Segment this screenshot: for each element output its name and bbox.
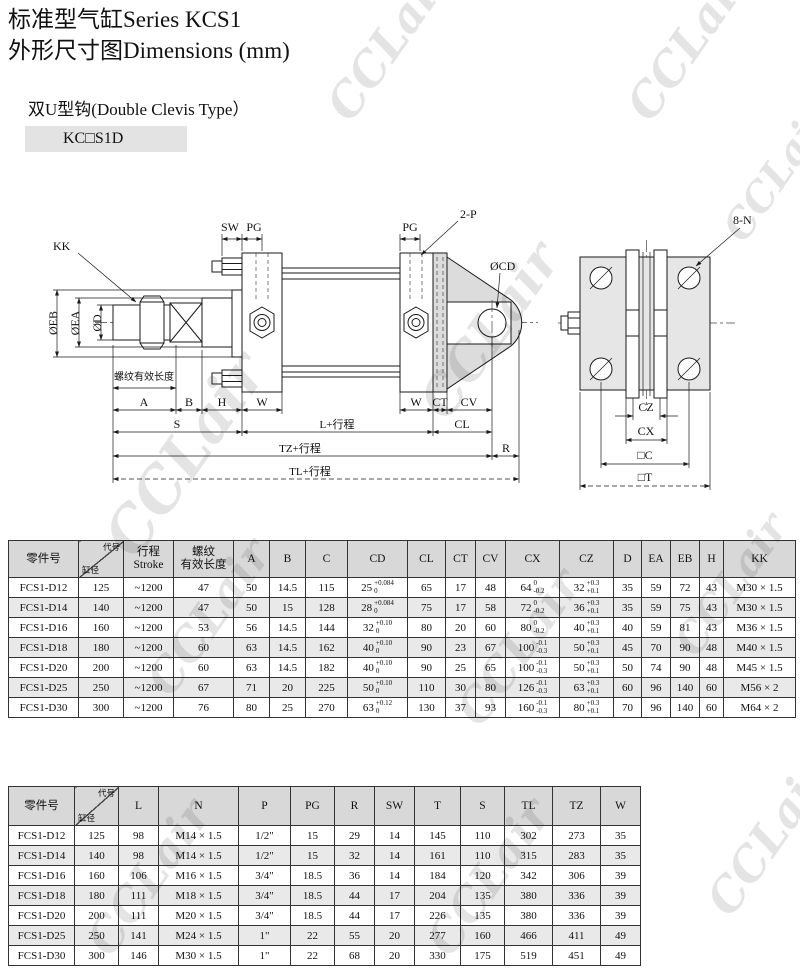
- table-cell: 60: [700, 698, 724, 718]
- table-cell: 90: [671, 658, 700, 678]
- table-cell: 45: [614, 638, 642, 658]
- table-cell: FCS1-D12: [9, 826, 75, 846]
- table-cell: FCS1-D30: [9, 946, 75, 966]
- dim-label-cz: CZ: [638, 400, 653, 414]
- table-cell: 48: [700, 638, 724, 658]
- table-cell: ~1200: [124, 658, 174, 678]
- table-cell: 140: [79, 598, 124, 618]
- table-cell: 140: [671, 698, 700, 718]
- column-header: CV: [476, 541, 506, 578]
- table-cell: M30 × 1.5: [724, 578, 796, 598]
- table-cell: 63: [234, 658, 270, 678]
- table-cell: 15: [291, 846, 335, 866]
- table-cell: 225: [306, 678, 348, 698]
- table-cell: 39: [601, 886, 641, 906]
- column-header: B: [270, 541, 306, 578]
- column-header: D: [614, 541, 642, 578]
- dim-label-kk: KK: [53, 239, 71, 253]
- table-cell: 36+0.3+0.1: [560, 598, 614, 618]
- table-cell: 60: [476, 618, 506, 638]
- table-cell: 55: [335, 926, 375, 946]
- table-cell: 161: [415, 846, 461, 866]
- table-cell: 111: [119, 906, 159, 926]
- table-cell: M18 × 1.5: [159, 886, 239, 906]
- table-cell: 120: [461, 866, 505, 886]
- table-cell: 1": [239, 946, 291, 966]
- table-cell: 60: [614, 678, 642, 698]
- table-cell: 182: [306, 658, 348, 678]
- dim-label-w-front: W: [256, 395, 268, 409]
- column-header: L: [119, 787, 159, 826]
- table-cell: 63+0.3+0.1: [560, 678, 614, 698]
- table-cell: FCS1-D30: [9, 698, 79, 718]
- dimension-drawing: KK SW PG PG 2-P ØCD ØEB ØEA ØD 螺纹有效长度: [0, 185, 800, 525]
- table-cell: 306: [553, 866, 601, 886]
- table-cell: 49: [601, 946, 641, 966]
- column-header: SW: [375, 787, 415, 826]
- table-cell: 47: [174, 578, 234, 598]
- table-cell: 640-0.2: [506, 578, 560, 598]
- table-cell: 67: [174, 678, 234, 698]
- mounting-type-subtitle: 双U型钩(Double Clevis Type）: [28, 95, 249, 120]
- table-cell: 3/4": [239, 906, 291, 926]
- table-cell: 135: [461, 906, 505, 926]
- table-cell: M36 × 1.5: [724, 618, 796, 638]
- dim-label-a: A: [140, 395, 149, 409]
- table-cell: 50: [234, 598, 270, 618]
- table-row: FCS1-D12125~1200475014.511525+0.08406517…: [9, 578, 796, 598]
- dim-label-pg-front: PG: [246, 220, 262, 234]
- table-cell: 144: [306, 618, 348, 638]
- table-cell: 40+0.100: [348, 638, 408, 658]
- table-cell: 14: [375, 826, 415, 846]
- dim-label-sw: SW: [221, 220, 240, 234]
- table-cell: 110: [408, 678, 446, 698]
- table-cell: 90: [408, 638, 446, 658]
- table-cell: 1": [239, 926, 291, 946]
- table-row: FCS1-D25250141M24 × 1.51"225520277160466…: [9, 926, 641, 946]
- column-header: TL: [505, 787, 553, 826]
- table-cell: M14 × 1.5: [159, 846, 239, 866]
- table-cell: 100-0.1-0.3: [506, 638, 560, 658]
- dim-label-oea: ØEA: [68, 310, 82, 335]
- table-cell: M20 × 1.5: [159, 906, 239, 926]
- column-header: T: [415, 787, 461, 826]
- table-cell: 141: [119, 926, 159, 946]
- table-cell: 380: [505, 886, 553, 906]
- table-cell: 40+0.100: [348, 658, 408, 678]
- table-cell: 17: [446, 578, 476, 598]
- column-header: 零件号: [9, 541, 79, 578]
- table-row: FCS1-D16160106M16 × 1.53/4"18.5361418412…: [9, 866, 641, 886]
- dim-label-r: R: [502, 441, 510, 455]
- table-cell: 273: [553, 826, 601, 846]
- table-cell: 175: [461, 946, 505, 966]
- dim-label-tl-stroke: TL+行程: [289, 465, 331, 478]
- table-cell: 47: [174, 598, 234, 618]
- table-cell: 32+0.3+0.1: [560, 578, 614, 598]
- table-cell: 63+0.120: [348, 698, 408, 718]
- table-cell: 39: [601, 906, 641, 926]
- table-cell: 37: [446, 698, 476, 718]
- column-header: CL: [408, 541, 446, 578]
- table-cell: 80+0.3+0.1: [560, 698, 614, 718]
- table-cell: 1/2": [239, 846, 291, 866]
- table-cell: 40+0.3+0.1: [560, 618, 614, 638]
- dim-label-ct: CT: [432, 395, 448, 409]
- cylinder-end-view: 8-N CZ CX □C □T: [558, 213, 752, 490]
- table-cell: M56 × 2: [724, 678, 796, 698]
- table-cell: 300: [79, 698, 124, 718]
- table-row: FCS1-D30300146M30 × 1.51"226820330175519…: [9, 946, 641, 966]
- dim-label-cv: CV: [461, 395, 478, 409]
- table-cell: FCS1-D18: [9, 638, 79, 658]
- table-row: FCS1-D25250~120067712022550+0.1001103080…: [9, 678, 796, 698]
- table-cell: 145: [415, 826, 461, 846]
- table-cell: 204: [415, 886, 461, 906]
- dim-label-tz-stroke: TZ+行程: [279, 442, 321, 455]
- column-header: CT: [446, 541, 476, 578]
- dimension-table-2: 零件号代号缸径LNPPGRSWTSTLTZWFCS1-D1212598M14 ×…: [8, 786, 641, 966]
- table-cell: 65: [476, 658, 506, 678]
- table-cell: 115: [306, 578, 348, 598]
- table-cell: 14.5: [270, 638, 306, 658]
- table-cell: 15: [291, 826, 335, 846]
- column-header: C: [306, 541, 348, 578]
- table-cell: 226: [415, 906, 461, 926]
- table-cell: 336: [553, 886, 601, 906]
- table-cell: 17: [375, 906, 415, 926]
- table-cell: 283: [553, 846, 601, 866]
- table-cell: 80: [408, 618, 446, 638]
- table-cell: 39: [601, 866, 641, 886]
- dimension-table-1: 零件号代号缸径行程Stroke螺纹有效长度ABCCDCLCTCVCXCZDEAE…: [8, 540, 796, 718]
- table-cell: 44: [335, 886, 375, 906]
- table-cell: 180: [79, 638, 124, 658]
- table-cell: 451: [553, 946, 601, 966]
- table-cell: FCS1-D12: [9, 578, 79, 598]
- table-cell: 65: [408, 578, 446, 598]
- table-cell: ~1200: [124, 638, 174, 658]
- table-cell: M30 × 1.5: [159, 946, 239, 966]
- table-cell: 43: [700, 598, 724, 618]
- table-cell: 380: [505, 906, 553, 926]
- table-cell: 96: [642, 678, 671, 698]
- table-cell: 28+0.0840: [348, 598, 408, 618]
- dim-label-w-rear: W: [410, 395, 422, 409]
- table-cell: 110: [461, 826, 505, 846]
- table-cell: 44: [335, 906, 375, 926]
- table-cell: 98: [119, 846, 159, 866]
- table-cell: 70: [614, 698, 642, 718]
- table-cell: 59: [642, 598, 671, 618]
- dim-label-8n: 8-N: [733, 213, 752, 227]
- table-cell: 160: [461, 926, 505, 946]
- table-cell: 80: [476, 678, 506, 698]
- table-cell: 50: [614, 658, 642, 678]
- table-cell: 200: [75, 906, 119, 926]
- column-header: KK: [724, 541, 796, 578]
- table-cell: 50+0.3+0.1: [560, 638, 614, 658]
- table-cell: 162: [306, 638, 348, 658]
- table-cell: 35: [601, 846, 641, 866]
- dim-label-cx: CX: [638, 424, 655, 438]
- watermark: CCLair: [616, 0, 762, 130]
- table-cell: 22: [291, 946, 335, 966]
- table-cell: M24 × 1.5: [159, 926, 239, 946]
- table-cell: 72: [671, 578, 700, 598]
- dim-label-thread-length: 螺纹有效长度: [114, 370, 174, 383]
- table-cell: 40: [614, 618, 642, 638]
- table-cell: 56: [234, 618, 270, 638]
- column-header: 螺纹有效长度: [174, 541, 234, 578]
- table-cell: ~1200: [124, 698, 174, 718]
- table-cell: 720-0.2: [506, 598, 560, 618]
- table-cell: 25+0.0840: [348, 578, 408, 598]
- table-cell: 60: [700, 678, 724, 698]
- table-cell: 800-0.2: [506, 618, 560, 638]
- table-cell: 25: [446, 658, 476, 678]
- table-cell: 98: [119, 826, 159, 846]
- table-cell: M14 × 1.5: [159, 826, 239, 846]
- table-cell: 180: [75, 886, 119, 906]
- table-cell: 20: [270, 678, 306, 698]
- table-cell: FCS1-D16: [9, 866, 75, 886]
- table-cell: M40 × 1.5: [724, 638, 796, 658]
- table-cell: 342: [505, 866, 553, 886]
- table-cell: 80: [234, 698, 270, 718]
- dim-label-oeb: ØEB: [46, 311, 60, 335]
- column-header: EA: [642, 541, 671, 578]
- table-cell: 14.5: [270, 658, 306, 678]
- column-header: S: [461, 787, 505, 826]
- table-cell: 17: [375, 886, 415, 906]
- table-cell: M64 × 2: [724, 698, 796, 718]
- table-cell: 126-0.1-0.3: [506, 678, 560, 698]
- column-header: CZ: [560, 541, 614, 578]
- table-cell: 48: [476, 578, 506, 598]
- table-cell: 74: [642, 658, 671, 678]
- datasheet-page: CCLair CCLair CCLair CCLair CCLair CCLai…: [0, 0, 800, 974]
- table-row: FCS1-D30300~120076802527063+0.1201303793…: [9, 698, 796, 718]
- table-cell: 250: [75, 926, 119, 946]
- dim-label-od: ØD: [90, 314, 104, 332]
- table-cell: 111: [119, 886, 159, 906]
- column-header: TZ: [553, 787, 601, 826]
- column-header: 代号缸径: [75, 787, 119, 826]
- table-cell: 125: [79, 578, 124, 598]
- table-cell: 93: [476, 698, 506, 718]
- table-cell: ~1200: [124, 618, 174, 638]
- table-cell: 160: [79, 618, 124, 638]
- table-cell: 130: [408, 698, 446, 718]
- table-cell: 277: [415, 926, 461, 946]
- table-cell: 200: [79, 658, 124, 678]
- column-header: A: [234, 541, 270, 578]
- dim-label-pg-rear: PG: [402, 220, 418, 234]
- table-cell: 58: [476, 598, 506, 618]
- table-cell: 22: [291, 926, 335, 946]
- table-cell: 32: [335, 846, 375, 866]
- table-cell: 106: [119, 866, 159, 886]
- table-cell: 315: [505, 846, 553, 866]
- table-row: FCS1-D20200~1200606314.518240+0.10090256…: [9, 658, 796, 678]
- dim-label-square-c: □C: [637, 448, 652, 462]
- table-cell: 90: [671, 638, 700, 658]
- column-header: W: [601, 787, 641, 826]
- table-cell: M30 × 1.5: [724, 598, 796, 618]
- table-cell: FCS1-D25: [9, 678, 79, 698]
- page-title: 标准型气缸Series KCS1 外形尺寸图Dimensions (mm): [8, 4, 290, 66]
- table-cell: 336: [553, 906, 601, 926]
- table-cell: 53: [174, 618, 234, 638]
- table-cell: 18.5: [291, 866, 335, 886]
- table-cell: 20: [446, 618, 476, 638]
- table-cell: 43: [700, 618, 724, 638]
- column-header: 零件号: [9, 787, 75, 826]
- table-cell: 48: [700, 658, 724, 678]
- table-cell: 146: [119, 946, 159, 966]
- table-cell: 59: [642, 618, 671, 638]
- table-cell: 250: [79, 678, 124, 698]
- watermark: CCLair: [696, 749, 800, 925]
- table-cell: 35: [601, 826, 641, 846]
- table-row: FCS1-D20200111M20 × 1.53/4"18.5441722613…: [9, 906, 641, 926]
- table-cell: 140: [671, 678, 700, 698]
- table-cell: 14.5: [270, 578, 306, 598]
- table-cell: 14: [375, 846, 415, 866]
- table-cell: 29: [335, 826, 375, 846]
- table-cell: 50+0.3+0.1: [560, 658, 614, 678]
- table-cell: 75: [671, 598, 700, 618]
- table-cell: 15: [270, 598, 306, 618]
- table-row: FCS1-D1414098M14 × 1.51/2"15321416111031…: [9, 846, 641, 866]
- table-cell: 160: [75, 866, 119, 886]
- table-cell: 18.5: [291, 886, 335, 906]
- table-cell: 125: [75, 826, 119, 846]
- table-cell: 270: [306, 698, 348, 718]
- table-cell: 330: [415, 946, 461, 966]
- dim-label-s: S: [174, 417, 181, 431]
- table-cell: 17: [446, 598, 476, 618]
- table-cell: ~1200: [124, 678, 174, 698]
- dim-label-square-t: □T: [638, 470, 653, 484]
- table-cell: 14.5: [270, 618, 306, 638]
- table-cell: ~1200: [124, 578, 174, 598]
- column-header: CD: [348, 541, 408, 578]
- table-cell: 23: [446, 638, 476, 658]
- table-cell: 3/4": [239, 866, 291, 886]
- table-cell: 90: [408, 658, 446, 678]
- table-cell: 466: [505, 926, 553, 946]
- table-row: FCS1-D1212598M14 × 1.51/2"15291414511030…: [9, 826, 641, 846]
- dim-label-l-stroke: L+行程: [320, 418, 355, 431]
- table-cell: FCS1-D14: [9, 846, 75, 866]
- table-cell: 60: [174, 638, 234, 658]
- dim-label-b: B: [185, 395, 193, 409]
- table-cell: 519: [505, 946, 553, 966]
- column-header: CX: [506, 541, 560, 578]
- table-cell: 59: [642, 578, 671, 598]
- table-cell: 100-0.1-0.3: [506, 658, 560, 678]
- table-cell: 18.5: [291, 906, 335, 926]
- table-cell: 35: [614, 598, 642, 618]
- table-cell: 36: [335, 866, 375, 886]
- table-cell: 1/2": [239, 826, 291, 846]
- dim-label-2p: 2-P: [460, 207, 477, 221]
- table-cell: 75: [408, 598, 446, 618]
- page-title-line2: 外形尺寸图Dimensions (mm): [8, 35, 290, 66]
- table-cell: 71: [234, 678, 270, 698]
- table-cell: 63: [234, 638, 270, 658]
- table-cell: 411: [553, 926, 601, 946]
- table-cell: 70: [642, 638, 671, 658]
- table-cell: 67: [476, 638, 506, 658]
- watermark: CCLair: [316, 0, 462, 130]
- table-cell: FCS1-D25: [9, 926, 75, 946]
- table-cell: 60: [174, 658, 234, 678]
- table-cell: 110: [461, 846, 505, 866]
- table-cell: 20: [375, 926, 415, 946]
- table-cell: M16 × 1.5: [159, 866, 239, 886]
- column-header: R: [335, 787, 375, 826]
- table-cell: 43: [700, 578, 724, 598]
- table-cell: FCS1-D16: [9, 618, 79, 638]
- table-cell: 68: [335, 946, 375, 966]
- dim-label-ocd: ØCD: [490, 259, 516, 273]
- table-cell: 96: [642, 698, 671, 718]
- table-cell: M45 × 1.5: [724, 658, 796, 678]
- table-cell: 300: [75, 946, 119, 966]
- table-cell: 50+0.100: [348, 678, 408, 698]
- table-cell: FCS1-D20: [9, 658, 79, 678]
- table-cell: 50: [234, 578, 270, 598]
- column-header: P: [239, 787, 291, 826]
- dim-label-cl: CL: [454, 417, 469, 431]
- page-title-line1: 标准型气缸Series KCS1: [8, 4, 290, 35]
- column-header: PG: [291, 787, 335, 826]
- table-cell: 35: [614, 578, 642, 598]
- column-header: 行程Stroke: [124, 541, 174, 578]
- table-cell: 140: [75, 846, 119, 866]
- column-header: 代号缸径: [79, 541, 124, 578]
- table-cell: 160-0.1-0.3: [506, 698, 560, 718]
- table-cell: 30: [446, 678, 476, 698]
- column-header: EB: [671, 541, 700, 578]
- table-cell: 49: [601, 926, 641, 946]
- table-cell: FCS1-D20: [9, 906, 75, 926]
- table-cell: 128: [306, 598, 348, 618]
- table-cell: FCS1-D18: [9, 886, 75, 906]
- table-cell: 81: [671, 618, 700, 638]
- column-header: N: [159, 787, 239, 826]
- table-cell: 302: [505, 826, 553, 846]
- table-cell: ~1200: [124, 598, 174, 618]
- table-cell: 184: [415, 866, 461, 886]
- table-cell: 20: [375, 946, 415, 966]
- table-cell: 25: [270, 698, 306, 718]
- table-row: FCS1-D16160~1200535614.514432+0.10080206…: [9, 618, 796, 638]
- column-header: H: [700, 541, 724, 578]
- table-row: FCS1-D18180111M18 × 1.53/4"18.5441720413…: [9, 886, 641, 906]
- table-row: FCS1-D14140~120047501512828+0.0840751758…: [9, 598, 796, 618]
- dim-label-h: H: [218, 395, 227, 409]
- table-cell: 76: [174, 698, 234, 718]
- table-cell: 135: [461, 886, 505, 906]
- model-code-badge: KC□S1D: [25, 126, 187, 152]
- table-cell: 3/4": [239, 886, 291, 906]
- table-cell: 32+0.100: [348, 618, 408, 638]
